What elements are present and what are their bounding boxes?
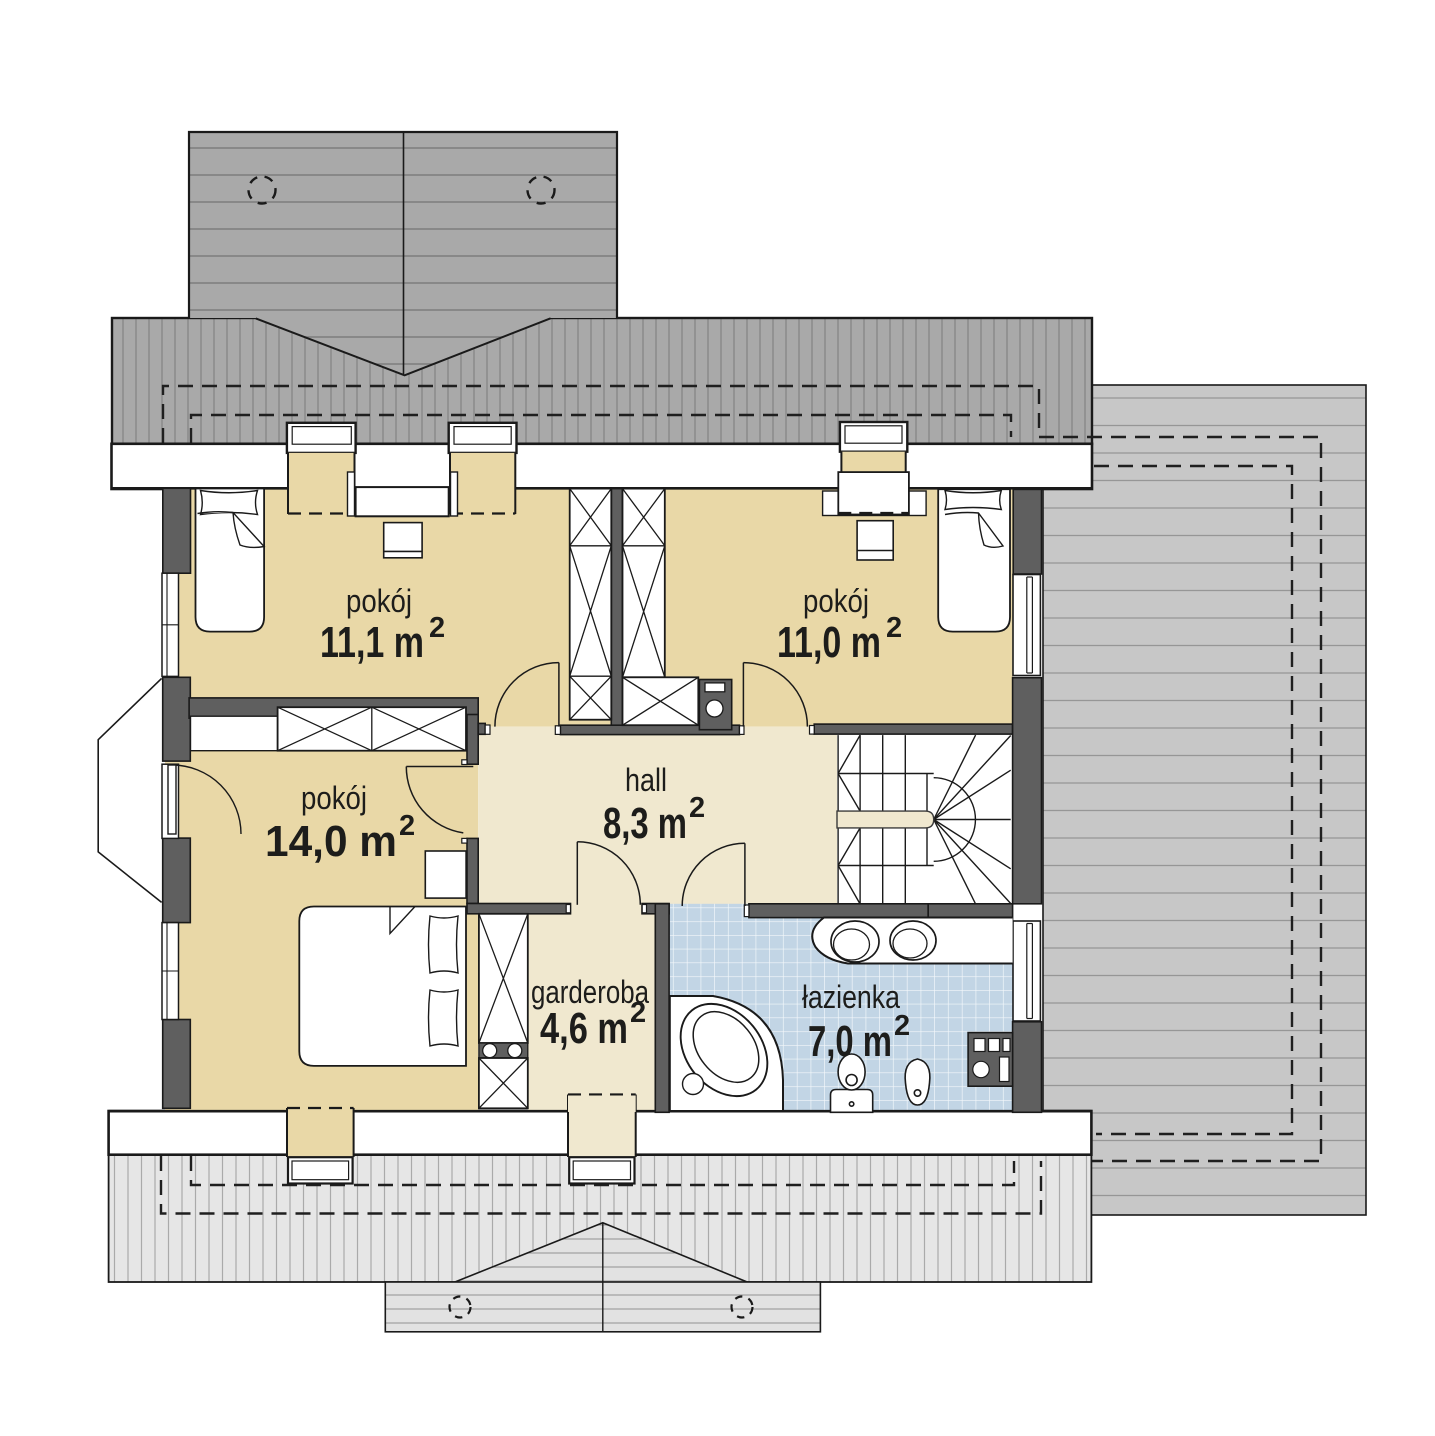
svg-text:2: 2 [399,810,415,842]
svg-text:14,0 m: 14,0 m [265,817,397,866]
svg-text:11,0 m: 11,0 m [777,618,881,667]
svg-text:2: 2 [689,792,705,824]
svg-text:łazienka: łazienka [802,979,900,1015]
svg-text:8,3 m: 8,3 m [603,799,687,848]
svg-text:7,0 m: 7,0 m [808,1017,892,1066]
svg-text:2: 2 [630,997,646,1029]
svg-text:2: 2 [429,612,445,644]
svg-text:2: 2 [886,612,902,644]
svg-text:hall: hall [625,762,667,798]
svg-text:pokój: pokój [803,583,869,619]
svg-text:4,6 m: 4,6 m [540,1004,628,1053]
svg-text:2: 2 [894,1010,910,1042]
svg-text:pokój: pokój [301,780,367,816]
svg-text:11,1 m: 11,1 m [320,618,424,667]
svg-text:pokój: pokój [346,583,412,619]
